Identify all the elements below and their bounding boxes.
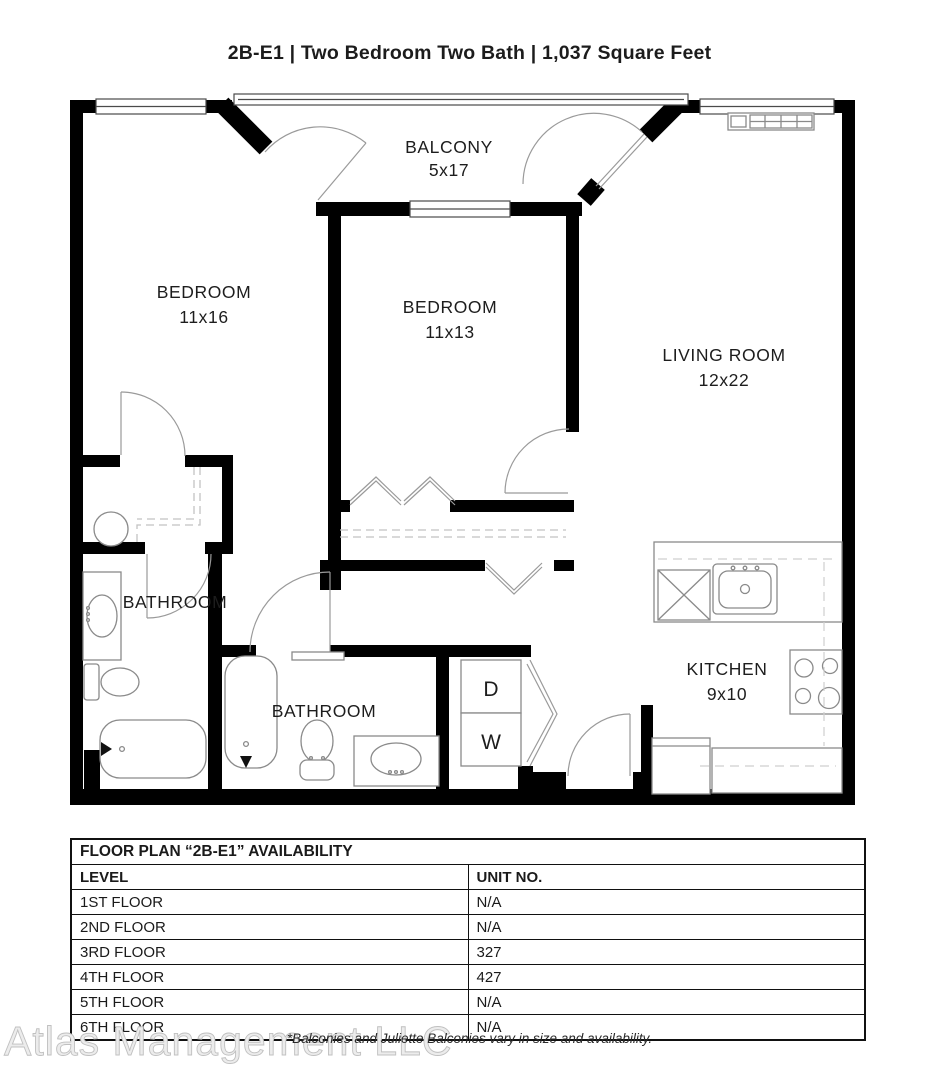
shelf — [292, 652, 344, 660]
unit-cell: N/A — [468, 915, 865, 940]
floor-plan: BALCONY 5x17 BEDROOM 11x16 BEDROOM 11x13… — [0, 0, 939, 830]
footnote: *Balconies and Juliette Balconies vary i… — [0, 1031, 939, 1046]
unit-cell: N/A — [468, 990, 865, 1015]
column-header-level: LEVEL — [71, 865, 468, 890]
table-title-row: FLOOR PLAN “2B-E1” AVAILABILITY — [71, 839, 865, 865]
bathtub — [100, 720, 206, 778]
table-header-row: LEVEL UNIT NO. — [71, 865, 865, 890]
toilet-tank — [84, 664, 99, 700]
bathtub — [225, 656, 277, 768]
table-row: 4TH FLOOR 427 — [71, 965, 865, 990]
table-title: FLOOR PLAN “2B-E1” AVAILABILITY — [71, 839, 865, 865]
table-row: 1ST FLOOR N/A — [71, 890, 865, 915]
kitchen-dims: 9x10 — [707, 684, 747, 704]
table-row: 3RD FLOOR 327 — [71, 940, 865, 965]
dryer-label: D — [483, 678, 498, 701]
toilet-bowl — [101, 668, 139, 696]
table-row: 5TH FLOOR N/A — [71, 990, 865, 1015]
level-cell: 3RD FLOOR — [71, 940, 468, 965]
living-room-label: LIVING ROOM — [662, 345, 785, 365]
kitchen-counter — [712, 748, 842, 793]
kitchen-label: KITCHEN — [686, 659, 767, 679]
column-header-unit: UNIT NO. — [468, 865, 865, 890]
level-cell: 1ST FLOOR — [71, 890, 468, 915]
balcony-label: BALCONY — [405, 137, 493, 157]
bathroom2-label: BATHROOM — [272, 701, 377, 721]
level-cell: 2ND FLOOR — [71, 915, 468, 940]
bedroom1-label: BEDROOM — [157, 282, 252, 302]
living-room-dims: 12x22 — [699, 370, 750, 390]
room-labels: BALCONY 5x17 BEDROOM 11x16 BEDROOM 11x13… — [123, 137, 786, 754]
toilet-base — [300, 760, 334, 780]
level-cell: 5TH FLOOR — [71, 990, 468, 1015]
balcony-dims: 5x17 — [429, 160, 469, 180]
bedroom2-label: BEDROOM — [403, 297, 498, 317]
availability-table: FLOOR PLAN “2B-E1” AVAILABILITY LEVEL UN… — [70, 838, 866, 1041]
unit-cell: N/A — [468, 890, 865, 915]
bathroom1-label: BATHROOM — [123, 592, 228, 612]
bedroom2-dims: 11x13 — [425, 322, 474, 342]
toilet-bowl — [301, 720, 333, 762]
water-heater — [94, 512, 128, 546]
table-row: 2ND FLOOR N/A — [71, 915, 865, 940]
unit-cell: 327 — [468, 940, 865, 965]
washer-label: W — [481, 731, 501, 754]
unit-cell: 427 — [468, 965, 865, 990]
sink — [87, 595, 117, 637]
bedroom1-dims: 11x16 — [179, 307, 228, 327]
level-cell: 4TH FLOOR — [71, 965, 468, 990]
